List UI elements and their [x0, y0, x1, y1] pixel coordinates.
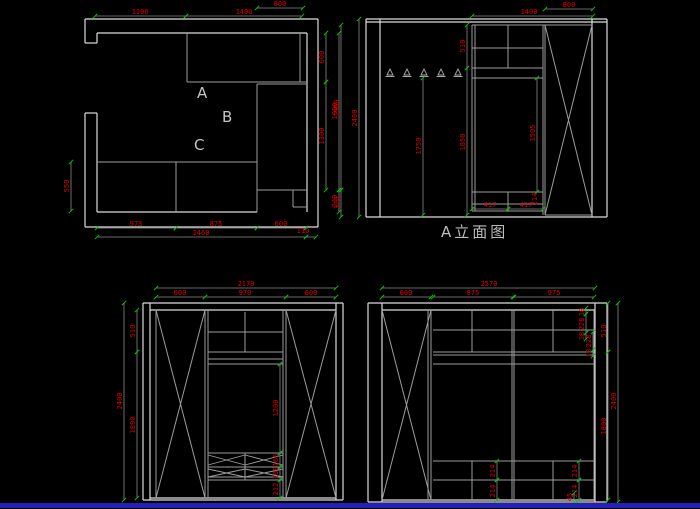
- dimension-label: 600: [275, 220, 288, 228]
- dimension-label: 2170: [238, 280, 255, 288]
- cad-canvas[interactable]: 8001100140060013001900230550973875600246…: [0, 0, 700, 509]
- dimension-label: 214: [489, 485, 497, 498]
- coat-hook-icon: [386, 69, 395, 77]
- dimension-label: 600: [305, 289, 318, 297]
- coat-hook-icon: [454, 69, 463, 77]
- dimension-label: 1200: [272, 400, 280, 417]
- dimension-label: 165: [272, 454, 280, 467]
- dimension-label: 1890: [129, 417, 137, 434]
- dimension-label: 510: [129, 325, 137, 338]
- dimension-label: 600: [174, 289, 187, 297]
- viewport-bottom-edge: [0, 503, 700, 508]
- dimension-label: 2400: [116, 393, 124, 410]
- dimension-label: 600: [318, 51, 326, 64]
- dimension-label: 1505: [529, 125, 537, 142]
- dimension-label: 975: [548, 289, 561, 297]
- dimension-label: 875: [467, 289, 480, 297]
- dimension-label: 212: [272, 483, 280, 496]
- dimension-label: 1800: [600, 418, 608, 435]
- dimension-label: 1750: [415, 138, 423, 155]
- dimension-label: 417: [484, 201, 497, 209]
- dimension-label: 1100: [132, 8, 149, 16]
- dimension-label: 214: [489, 465, 497, 478]
- dimension-label: 228: [585, 335, 593, 348]
- dimension-label: 1400: [236, 8, 253, 16]
- dimension-label: 800: [563, 1, 576, 9]
- dimension-label: 970: [239, 289, 252, 297]
- dimension-label: 2570: [481, 280, 498, 288]
- dimension-label: 45: [566, 493, 574, 501]
- dimension-label: 214: [571, 465, 579, 478]
- dimension-label: 550: [63, 180, 71, 193]
- coat-hook-icon: [437, 69, 446, 77]
- dimension-label: 875: [210, 220, 223, 228]
- dimension-label: 1900: [333, 100, 341, 117]
- dimension-label: 110: [297, 227, 310, 235]
- dimension-label: 973: [130, 220, 143, 228]
- dimension-label: 18: [585, 349, 593, 357]
- cad-drawing-svg: 8001100140060013001900230550973875600246…: [0, 0, 700, 509]
- dimension-label: 510: [459, 40, 467, 53]
- dimension-label: 1400: [521, 8, 538, 16]
- dimension-label: 160: [272, 467, 280, 480]
- dimension-label: 2400: [351, 110, 359, 127]
- coat-hook-icon: [420, 69, 429, 77]
- coat-hook-icon: [403, 69, 412, 77]
- dimension-label: 510: [600, 325, 608, 338]
- dimension-label: 214: [531, 193, 539, 206]
- dimension-label: 228: [578, 318, 586, 331]
- dimension-label: 800: [274, 0, 287, 8]
- dimension-label: 320: [333, 197, 341, 210]
- dimension-label: 2400: [610, 393, 618, 410]
- dimension-label: 2460: [193, 229, 210, 237]
- dimension-label: 1300: [318, 128, 326, 145]
- dimension-label: 1850: [459, 134, 467, 151]
- dimension-label: 600: [400, 289, 413, 297]
